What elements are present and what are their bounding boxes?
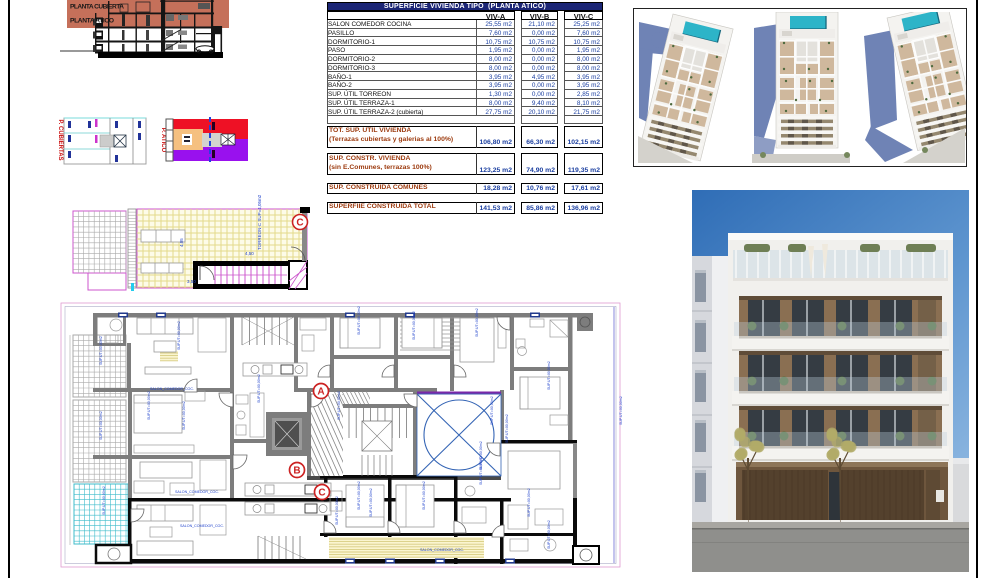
svg-text:SALON_COMEDOR_COC.: SALON_COMEDOR_COC. (175, 490, 219, 494)
svg-text:P. ATICO: P. ATICO (160, 128, 166, 153)
svg-text:4,50: 4,50 (245, 251, 254, 256)
svg-text:PLANTA CUBIERTA: PLANTA CUBIERTA (70, 4, 124, 11)
svg-text:SUP.UT=00,00m2: SUP.UT=00,00m2 (257, 374, 261, 403)
svg-text:A: A (317, 386, 324, 397)
svg-text:SUP.UT=00,00m2: SUP.UT=00,00m2 (99, 336, 103, 365)
svg-text:SALON_COMEDOR_COC.: SALON_COMEDOR_COC. (150, 387, 194, 391)
svg-text:SUP.UT=00,00m2: SUP.UT=00,00m2 (475, 308, 479, 337)
svg-text:SUP.UT=00,00m2: SUP.UT=00,00m2 (102, 486, 106, 515)
svg-text:B: B (293, 465, 300, 476)
svg-text:P. CUBIERTAS: P. CUBIERTAS (57, 119, 63, 160)
svg-text:SUP.UT=00,00m2: SUP.UT=00,00m2 (479, 456, 483, 485)
svg-text:SUP.UT=00,00m2: SUP.UT=00,00m2 (182, 401, 186, 430)
svg-text:TORREON-C SUP=4,05m2: TORREON-C SUP=4,05m2 (257, 195, 262, 250)
svg-text:SUP.UT=00,00m2: SUP.UT=00,00m2 (99, 411, 103, 440)
svg-text:SUP.UT=00,00m2: SUP.UT=00,00m2 (422, 481, 426, 510)
svg-text:SUP.UT=00,00m2: SUP.UT=00,00m2 (527, 488, 531, 517)
svg-text:SUP.UT=00,00m2: SUP.UT=00,00m2 (505, 414, 509, 443)
svg-text:3,50: 3,50 (187, 279, 196, 284)
svg-text:SUP.UT=00,00m2: SUP.UT=00,00m2 (147, 391, 151, 420)
svg-text:SUP.UT=00,00m2: SUP.UT=00,00m2 (337, 391, 341, 420)
svg-text:C: C (296, 218, 303, 229)
svg-text:SALON_COMEDOR_COC.: SALON_COMEDOR_COC. (420, 548, 464, 552)
svg-text:C: C (318, 487, 325, 498)
svg-text:SUP.UT=00,00m2: SUP.UT=00,00m2 (547, 520, 551, 549)
svg-text:SUP.UT=00,00m2: SUP.UT=00,00m2 (619, 396, 623, 425)
svg-text:SUP.UT=00,00m2: SUP.UT=00,00m2 (547, 361, 551, 390)
svg-text:SUP.UT=00,00m2: SUP.UT=00,00m2 (357, 306, 361, 335)
svg-text:SUP.UT=00,00m2: SUP.UT=00,00m2 (177, 321, 181, 350)
svg-text:SUP.UT=00,00m2: SUP.UT=00,00m2 (357, 481, 361, 510)
svg-text:SUP.UT=00,00m2: SUP.UT=00,00m2 (412, 311, 416, 340)
svg-text:PLANTA ATICO: PLANTA ATICO (70, 18, 114, 25)
svg-text:SUP.UT=00,00m2: SUP.UT=00,00m2 (335, 496, 339, 525)
svg-text:4,05: 4,05 (179, 238, 184, 247)
svg-text:SUP.UT=00,00m2: SUP.UT=00,00m2 (369, 488, 373, 517)
svg-text:SUP.UT=00,00m2: SUP.UT=00,00m2 (490, 396, 494, 425)
svg-text:SALON_COMEDOR_COC.: SALON_COMEDOR_COC. (180, 524, 224, 528)
